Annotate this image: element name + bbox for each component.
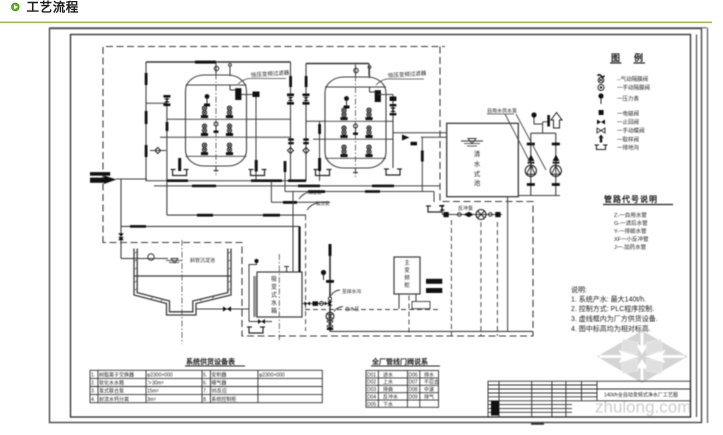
svg-text:φ2300×000: φ2300×000 bbox=[147, 373, 173, 379]
svg-text:排水: 排水 bbox=[424, 371, 434, 378]
svg-text:1. 系统产水: 最大140t/h.: 1. 系统产水: 最大140t/h. bbox=[571, 295, 646, 304]
svg-text:一排地沟: 一排地沟 bbox=[617, 144, 640, 152]
svg-text:反冲泵: 反冲泵 bbox=[458, 205, 473, 212]
svg-text:上水: 上水 bbox=[383, 379, 393, 386]
svg-text:4.: 4. bbox=[91, 397, 95, 403]
svg-text:软化水水箱: 软化水水箱 bbox=[99, 380, 124, 387]
svg-text:15m³: 15m³ bbox=[147, 389, 159, 395]
svg-text:D03: D03 bbox=[367, 387, 376, 393]
svg-text:曝气器: 曝气器 bbox=[211, 380, 226, 387]
svg-text:泵式联合泵: 泵式联合泵 bbox=[99, 388, 124, 395]
svg-text:反冲水: 反冲水 bbox=[383, 394, 398, 401]
svg-text:D01: D01 bbox=[367, 372, 376, 378]
svg-text:式: 式 bbox=[271, 291, 277, 299]
svg-text:Z-一自用水管: Z-一自用水管 bbox=[614, 211, 647, 219]
svg-text:恒压变频过滤器: 恒压变频过滤器 bbox=[388, 69, 427, 80]
svg-text:D05: D05 bbox=[367, 402, 376, 408]
svg-text:变: 变 bbox=[404, 266, 410, 274]
svg-text:自用水供水泵: 自用水供水泵 bbox=[487, 108, 517, 115]
svg-text:中速: 中速 bbox=[424, 386, 434, 393]
svg-text:射流水钙分离: 射流水钙分离 bbox=[99, 396, 129, 403]
svg-text:恒压变频过滤器: 恒压变频过滤器 bbox=[251, 68, 290, 79]
svg-text:D07: D07 bbox=[408, 380, 417, 386]
svg-text:＞30m³: ＞30m³ bbox=[147, 381, 164, 387]
svg-text:D09: D09 bbox=[408, 395, 417, 401]
svg-text:95反应: 95反应 bbox=[211, 388, 227, 395]
svg-text:1.: 1. bbox=[91, 373, 95, 379]
svg-text:一手动隔膜阀: 一手动隔膜阀 bbox=[617, 84, 650, 92]
svg-text:一止回阀: 一止回阀 bbox=[617, 118, 639, 126]
svg-text:频: 频 bbox=[404, 274, 410, 282]
svg-text:排放管: 排放管 bbox=[308, 189, 322, 196]
svg-text:不忍去: 不忍去 bbox=[424, 379, 439, 386]
svg-text:5.: 5. bbox=[203, 373, 207, 379]
svg-text:图例: 图例 bbox=[611, 52, 657, 63]
svg-text:3m³: 3m³ bbox=[147, 397, 156, 403]
svg-text:2. 控制方式: PLC程序控制.: 2. 控制方式: PLC程序控制. bbox=[571, 304, 654, 313]
svg-text:φ2300×000: φ2300×000 bbox=[259, 373, 285, 379]
svg-text:一手动蝶阀: 一手动蝶阀 bbox=[617, 127, 645, 135]
svg-text:G-一滤后水管: G-一滤后水管 bbox=[614, 219, 648, 227]
svg-text:D04: D04 bbox=[367, 395, 376, 401]
svg-text:至排水沟: 至排水沟 bbox=[342, 288, 361, 295]
svg-text:式: 式 bbox=[474, 169, 481, 178]
svg-text:D08: D08 bbox=[408, 387, 417, 393]
svg-text:140t/h全自动变频式净水厂工艺图: 140t/h全自动变频式净水厂工艺图 bbox=[604, 392, 678, 399]
svg-text:主: 主 bbox=[404, 259, 410, 267]
svg-text:3.: 3. bbox=[91, 389, 95, 395]
svg-text:系统供货设备表: 系统供货设备表 bbox=[186, 357, 236, 366]
svg-text:6.: 6. bbox=[203, 381, 207, 387]
svg-text:变: 变 bbox=[271, 283, 277, 291]
svg-text:清: 清 bbox=[474, 149, 481, 158]
svg-text:箱: 箱 bbox=[271, 307, 277, 315]
svg-text:排气: 排气 bbox=[424, 394, 434, 401]
svg-text:J一-加药水管: J一-加药水管 bbox=[614, 243, 647, 251]
svg-text:3. 虚线框内为厂方供货设备.: 3. 虚线框内为厂方供货设备. bbox=[571, 314, 658, 323]
svg-text:一压力表: 一压力表 bbox=[617, 95, 640, 103]
svg-text:--气动隔膜阀: --气动隔膜阀 bbox=[617, 75, 648, 83]
svg-text:D06: D06 bbox=[408, 372, 417, 378]
svg-text:XF一小反冲管: XF一小反冲管 bbox=[614, 235, 649, 243]
svg-text:管路代号说明: 管路代号说明 bbox=[604, 194, 658, 204]
svg-text:池: 池 bbox=[474, 178, 481, 187]
svg-text:8.: 8. bbox=[203, 397, 207, 403]
svg-text:一电磁阀: 一电磁阀 bbox=[617, 110, 639, 118]
svg-text:吸: 吸 bbox=[271, 276, 277, 283]
svg-text:树脂离子交换器: 树脂离子交换器 bbox=[99, 372, 134, 379]
svg-text:全厂管线门阀说系: 全厂管线门阀说系 bbox=[371, 357, 428, 366]
svg-text:进水: 进水 bbox=[383, 371, 393, 378]
svg-text:D02: D02 bbox=[367, 380, 376, 386]
svg-text:4. 图中标高均为相对标高.: 4. 图中标高均为相对标高. bbox=[571, 324, 651, 333]
svg-text:溢流管: 溢流管 bbox=[316, 200, 330, 207]
svg-text:一取样阀: 一取样阀 bbox=[617, 136, 639, 144]
svg-text:自水区: 自水区 bbox=[345, 306, 360, 313]
svg-text:水: 水 bbox=[474, 159, 481, 168]
svg-text:斜管沉淀池: 斜管沉淀池 bbox=[190, 257, 215, 264]
svg-text:柜: 柜 bbox=[404, 281, 410, 289]
svg-text:说明:: 说明: bbox=[571, 285, 587, 294]
svg-text:安积器: 安积器 bbox=[211, 372, 226, 379]
svg-text:7.: 7. bbox=[203, 389, 207, 395]
svg-text:系统控制柜: 系统控制柜 bbox=[211, 396, 236, 403]
svg-text:Y-一排碳水管: Y-一排碳水管 bbox=[614, 227, 647, 235]
svg-text:水: 水 bbox=[271, 299, 277, 307]
svg-text:下水: 下水 bbox=[383, 401, 393, 408]
svg-text:排曲: 排曲 bbox=[383, 386, 393, 393]
svg-text:2.: 2. bbox=[91, 381, 95, 387]
